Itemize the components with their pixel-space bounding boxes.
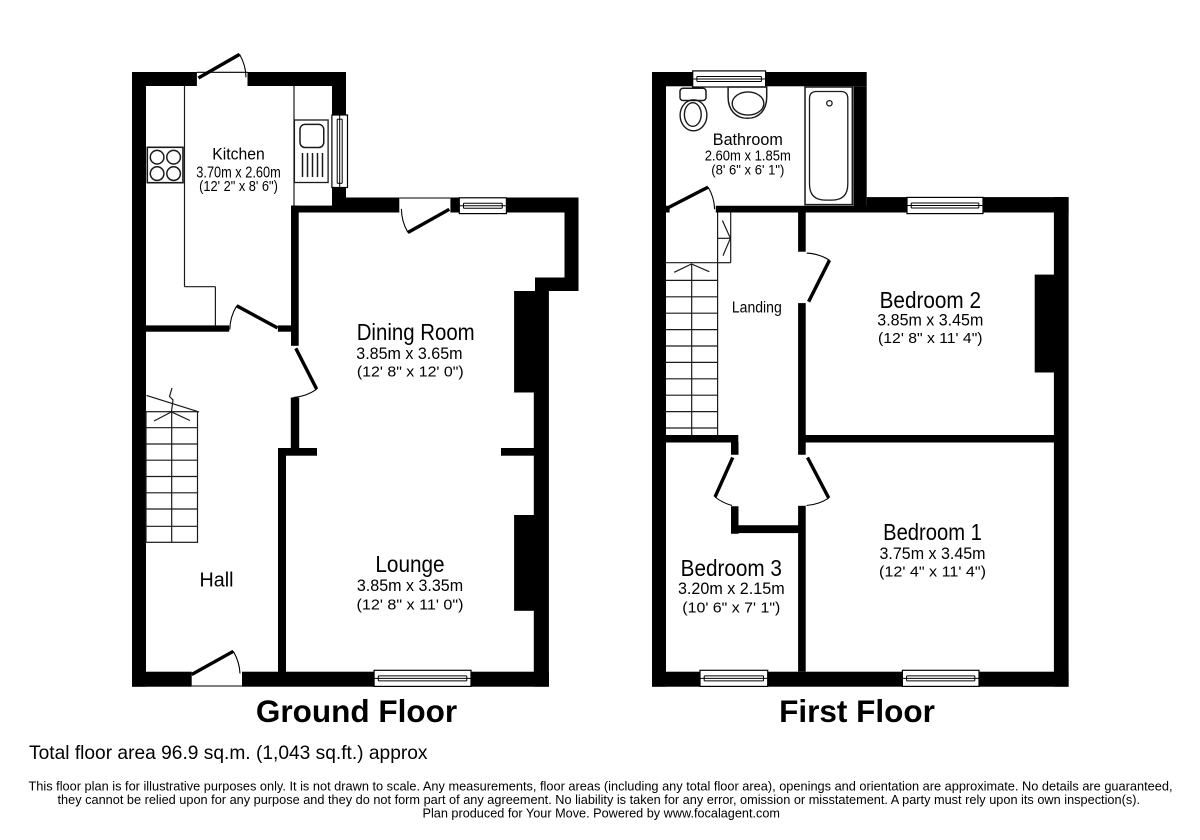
svg-text:they cannot be relied upon for: they cannot be relied upon for any purpo… <box>58 793 1141 807</box>
svg-text:(8' 6" x 6' 1"): (8' 6" x 6' 1") <box>711 163 784 178</box>
svg-text:(10' 6" x 7' 1"): (10' 6" x 7' 1") <box>682 600 780 617</box>
svg-text:(12' 8" x 11' 4"): (12' 8" x 11' 4") <box>878 330 983 347</box>
svg-text:Kitchen: Kitchen <box>212 144 265 163</box>
svg-text:Total floor area 96.9 sq.m. (1: Total floor area 96.9 sq.m. (1,043 sq.ft… <box>29 742 428 764</box>
svg-text:Bedroom 1: Bedroom 1 <box>883 519 982 545</box>
svg-text:3.20m x 2.15m: 3.20m x 2.15m <box>678 580 785 598</box>
svg-text:Bedroom 2: Bedroom 2 <box>880 287 981 313</box>
svg-text:3.85m x 3.65m: 3.85m x 3.65m <box>356 345 462 363</box>
svg-text:Landing: Landing <box>732 300 782 317</box>
svg-text:(12' 8" x 12' 0"): (12' 8" x 12' 0") <box>357 364 464 381</box>
svg-text:Bedroom 3: Bedroom 3 <box>681 555 782 581</box>
svg-text:This floor plan is for illustr: This floor plan is for illustrative purp… <box>29 780 1173 794</box>
svg-text:3.85m x 3.45m: 3.85m x 3.45m <box>877 311 983 329</box>
svg-text:3.85m x 3.35m: 3.85m x 3.35m <box>357 577 463 595</box>
svg-text:Hall: Hall <box>200 569 234 592</box>
svg-text:Dining Room: Dining Room <box>357 319 475 345</box>
svg-text:Plan produced for Your Move. P: Plan produced for Your Move. Powered by … <box>423 807 781 821</box>
svg-text:Ground Floor: Ground Floor <box>256 693 457 729</box>
svg-text:First Floor: First Floor <box>779 693 935 729</box>
svg-text:(12' 4" x 11' 4"): (12' 4" x 11' 4") <box>879 563 986 580</box>
svg-text:Bathroom: Bathroom <box>713 130 783 149</box>
svg-text:(12' 8" x 11' 0"): (12' 8" x 11' 0") <box>357 596 464 613</box>
svg-text:3.75m x 3.45m: 3.75m x 3.45m <box>880 545 986 563</box>
svg-text:(12' 2" x 8' 6"): (12' 2" x 8' 6") <box>199 179 278 195</box>
svg-text:Lounge: Lounge <box>375 551 444 577</box>
